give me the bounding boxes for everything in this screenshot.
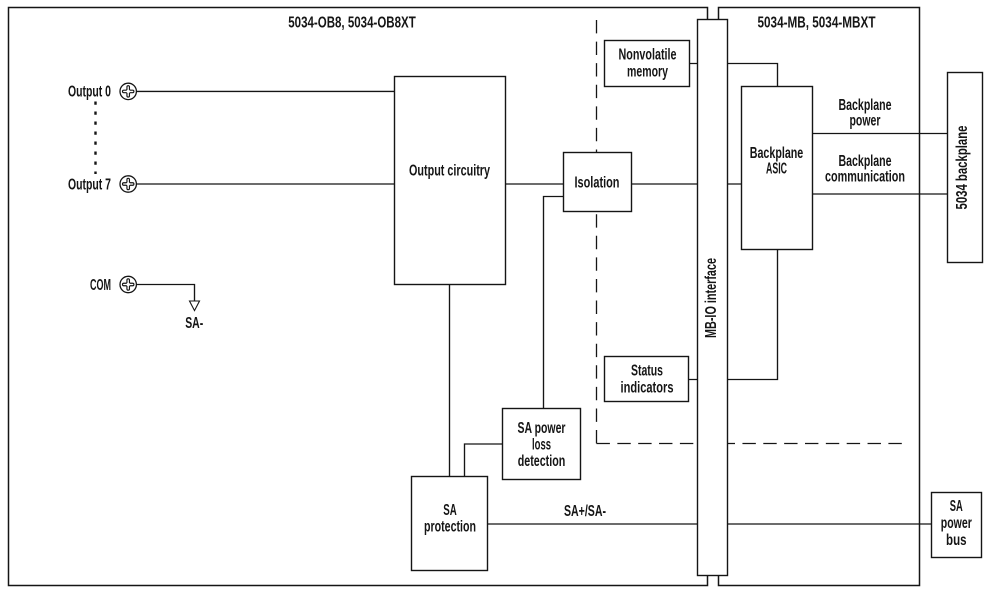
svg-text:Output 0: Output 0 [68,84,111,101]
svg-text:memory: memory [627,63,668,80]
svg-text:detection: detection [518,453,566,470]
svg-text:bus: bus [946,532,967,549]
svg-text:loss: loss [532,436,551,453]
svg-text:COM: COM [90,277,111,294]
svg-text:5034-MB, 5034-MBXT: 5034-MB, 5034-MBXT [758,15,876,32]
svg-text:5034-OB8, 5034-OB8XT: 5034-OB8, 5034-OB8XT [288,15,416,32]
svg-text:Output 7: Output 7 [68,176,111,193]
svg-text:MB-IO interface: MB-IO interface [703,258,720,338]
svg-text:Isolation: Isolation [575,175,620,192]
svg-text:5034 backplane: 5034 backplane [954,125,971,209]
svg-text:SA: SA [443,502,457,519]
svg-text:communication: communication [825,168,905,185]
svg-text:SA power: SA power [518,420,566,437]
svg-text:SA: SA [950,498,963,515]
svg-text:Backplane: Backplane [839,97,892,114]
svg-text:Output circuitry: Output circuitry [409,163,490,180]
svg-text:Nonvolatile: Nonvolatile [619,47,677,64]
svg-text:indicators: indicators [621,380,674,397]
svg-text:protection: protection [424,519,476,536]
svg-text:Status: Status [631,363,663,380]
svg-text:power: power [850,113,881,130]
svg-text:Backplane: Backplane [750,145,804,162]
svg-text:SA-: SA- [185,315,203,332]
svg-text:power: power [941,515,972,532]
svg-text:SA+/SA-: SA+/SA- [564,503,606,520]
svg-text:ASIC: ASIC [766,161,787,178]
